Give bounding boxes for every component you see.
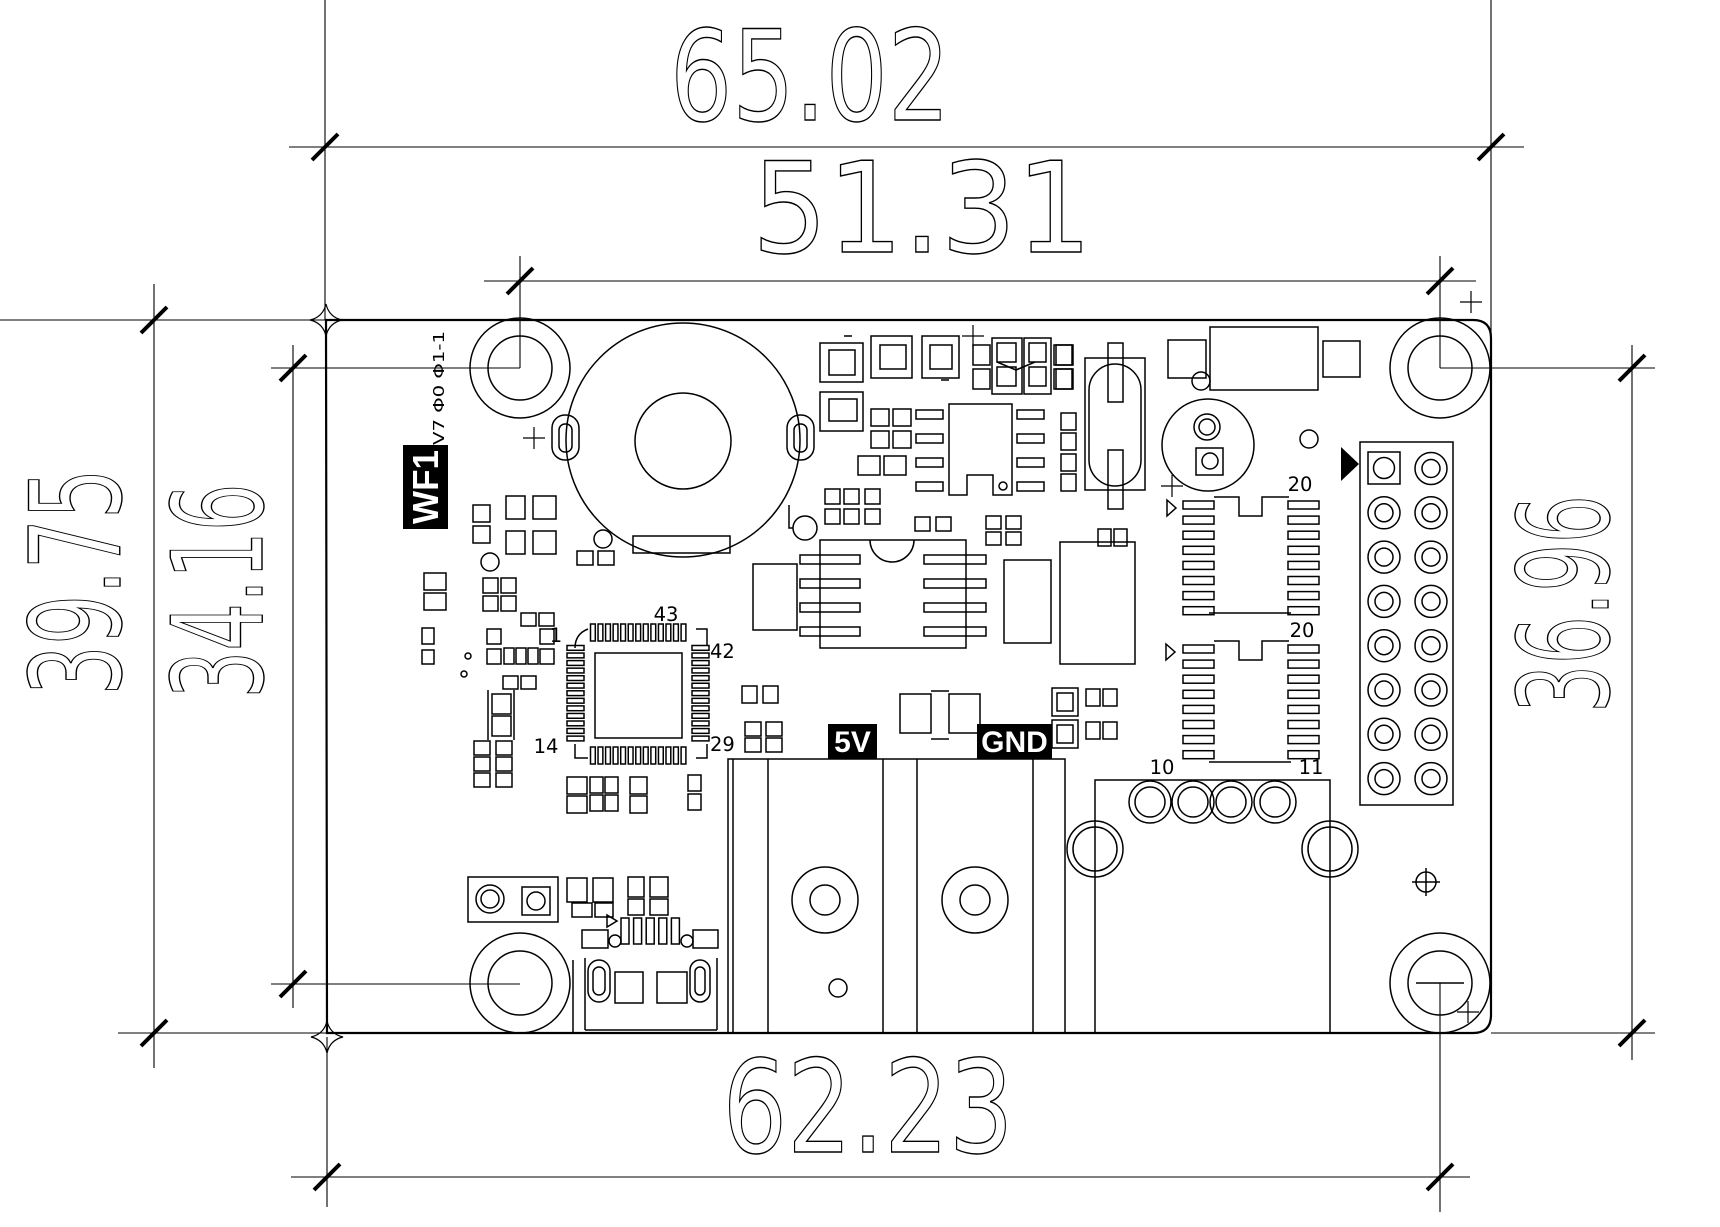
dim-top-outer: 65.02: [670, 3, 950, 150]
micro-usb-connector: [573, 915, 718, 1033]
qfp-pin43-label: 43: [654, 603, 679, 626]
header-pin1-marker: [1341, 447, 1359, 481]
silkscreen-labels: WF1 V7 Φ0 Φ1-1 5V GND: [403, 331, 1052, 759]
buzzer: [552, 323, 814, 557]
mounting-holes: [470, 318, 1490, 1033]
driver-upper-pin20-label: 20: [1288, 473, 1313, 496]
qfp-chip: 43 42 29 1 14: [534, 603, 735, 764]
power-5v-label: 5V: [834, 726, 871, 759]
power-terminal-block: [728, 759, 1065, 1033]
dim-bottom: 62.23: [723, 1034, 1014, 1183]
dimension-ticks: [141, 134, 1645, 1190]
driver-ic-upper: 20: [1167, 473, 1319, 615]
crystal: [1085, 343, 1145, 509]
soic8-chip: [789, 505, 986, 648]
power-gnd-label: GND: [981, 726, 1048, 759]
top-right-connector: [1168, 327, 1360, 390]
qfp-pin14-label: 14: [534, 735, 559, 758]
pcb-dimension-drawing: 65.02 51.31 39.75 34.16 36.96 62.23: [0, 0, 1720, 1227]
driver-lower-pin20-label: 20: [1290, 619, 1315, 642]
fiducial-icon: [1412, 868, 1440, 896]
electrolytic-cap: [1162, 399, 1254, 491]
module-connector: 10 11: [1067, 756, 1440, 1033]
module-pin10-label: 10: [1150, 756, 1175, 779]
qfp-pin42-label: 42: [710, 640, 735, 663]
board-outline: [310, 304, 1491, 1053]
qfp-pin29-label: 29: [710, 733, 735, 756]
model-label: WF1: [405, 450, 446, 524]
silk-lines: [488, 336, 1035, 740]
dim-left-inner: 34.16: [145, 484, 292, 699]
module-pin11-label: 11: [1299, 756, 1324, 779]
plus-marks: [523, 291, 1482, 1023]
driver-ic-lower: 20: [1166, 619, 1319, 762]
dim-right-side: 36.96: [1491, 495, 1638, 713]
version-label: V7 Φ0 Φ1-1: [430, 331, 448, 445]
drawing-canvas: 65.02 51.31 39.75 34.16 36.96 62.23: [0, 0, 1720, 1227]
pin-header-2x8: [1341, 442, 1453, 805]
dim-top-inner: 51.31: [752, 135, 1092, 282]
dim-left-outer: 39.75: [3, 469, 150, 696]
